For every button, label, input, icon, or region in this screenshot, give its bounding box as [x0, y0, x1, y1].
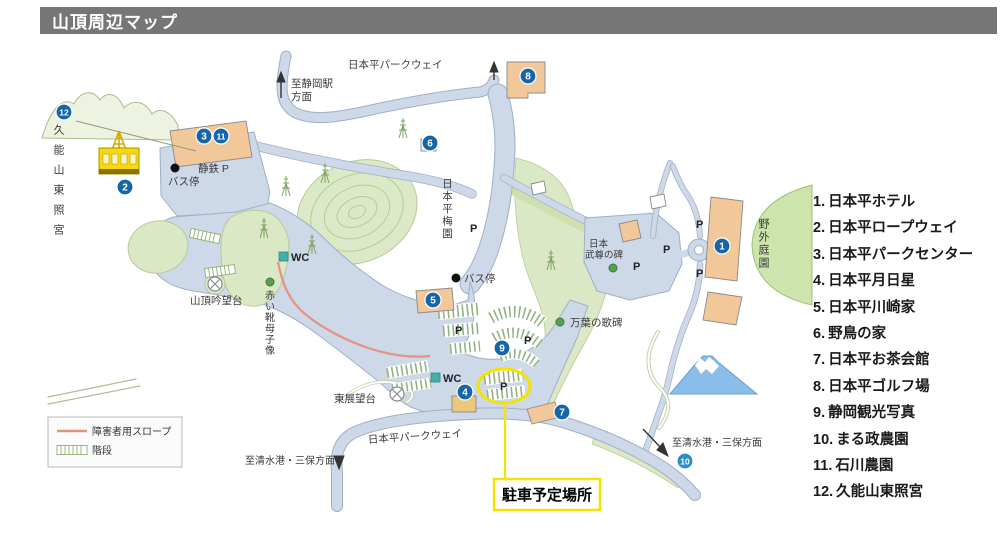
parking-plan-label: 駐車予定場所 — [502, 486, 592, 504]
marker-8: 8 — [520, 68, 536, 84]
svg-text:8: 8 — [525, 72, 531, 83]
label-to-shizuoka-2: 方面 — [291, 90, 312, 103]
marker-1: 1 — [714, 238, 730, 254]
bus-stop-dot-station — [171, 164, 180, 173]
svg-text:P: P — [696, 268, 703, 280]
legend-item-4: 4.日本平月日星 — [813, 273, 981, 290]
svg-text:9: 9 — [499, 344, 505, 355]
svg-text:10: 10 — [680, 457, 690, 467]
marker-9: 9 — [494, 340, 510, 356]
svg-text:12: 12 — [59, 108, 69, 118]
label-to-shimizu-right: 至清水港・三保方面 — [672, 436, 762, 449]
label-takeru-2: 武尊の碑 — [585, 249, 624, 261]
legend-item-8: 8.日本平ゴルフ場 — [813, 379, 981, 396]
legend-item-6: 6.野鳥の家 — [813, 326, 981, 343]
southwest-trail-lines — [48, 379, 140, 404]
label-yagai-teien: 野外庭園 — [757, 218, 770, 270]
label-wc-2: WC — [443, 373, 461, 385]
label-wc-1: WC — [291, 252, 309, 264]
building-small-2 — [650, 194, 666, 209]
svg-text:P: P — [696, 219, 703, 231]
legend-item-2: 2.日本平ロープウェイ — [813, 220, 981, 237]
legend-item-9: 9.静岡観光写真 — [813, 405, 981, 422]
svg-text:P: P — [633, 261, 640, 273]
svg-text:P: P — [663, 244, 670, 256]
akaikutsu-statue-dot — [266, 278, 274, 286]
viewpoint-icon-gimbodai — [208, 277, 222, 291]
building-hotel-annex — [703, 292, 742, 325]
marker-6: 6 — [422, 135, 438, 151]
legend-stairs-icon — [57, 446, 87, 455]
svg-text:4: 4 — [462, 388, 468, 399]
label-shizutetsu-p: 静鉄 P — [198, 162, 229, 175]
bus-stop-dot-center — [452, 274, 461, 283]
mount-fuji-icon — [670, 356, 757, 394]
marker-12: 12 — [56, 104, 72, 120]
legend-item-11: 11.石川農園 — [813, 458, 981, 475]
legend-item-1: 1.日本平ホテル — [813, 194, 981, 211]
label-takeru-1: 日本 — [589, 238, 609, 250]
marker-3: 3 — [196, 128, 212, 144]
label-to-shizuoka-1: 至静岡駅 — [291, 77, 333, 90]
label-to-shimizu-left: 至清水港・三保方面 — [245, 454, 335, 467]
building-small-1 — [531, 181, 546, 195]
legend-item-5: 5.日本平川崎家 — [813, 300, 981, 317]
roundabout-island — [695, 246, 704, 255]
svg-text:11: 11 — [217, 132, 226, 142]
svg-text:5: 5 — [430, 296, 436, 307]
svg-text:P: P — [500, 381, 507, 393]
label-baien: 日本平梅園 — [441, 178, 453, 241]
marker-11: 11 — [213, 128, 229, 144]
svg-text:6: 6 — [427, 139, 433, 150]
wc-icon-2 — [431, 373, 440, 382]
legend-stairs-label: 階段 — [92, 444, 112, 457]
label-akaikutsu: 赤い靴母子像 — [263, 290, 275, 356]
svg-text:P: P — [470, 223, 477, 235]
svg-text:7: 7 — [559, 408, 565, 419]
map-legend-box: 障害者用スロープ 階段 — [48, 417, 182, 467]
svg-text:P: P — [524, 335, 531, 347]
marker-7: 7 — [554, 404, 570, 420]
marker-5: 5 — [425, 292, 441, 308]
legend-panel: 1.日本平ホテル 2.日本平ロープウェイ 3.日本平パークセンター 4.日本平月… — [813, 194, 981, 511]
label-manyo: 万葉の歌碑 — [570, 316, 623, 329]
svg-text:1: 1 — [719, 242, 725, 253]
marker-4: 4 — [457, 384, 473, 400]
svg-text:2: 2 — [122, 183, 128, 194]
marker-2: 2 — [117, 179, 133, 195]
legend-item-12: 12.久能山東照宮 — [813, 484, 981, 501]
legend-item-7: 7.日本平お茶会館 — [813, 352, 981, 369]
marker-10: 10 — [677, 453, 693, 469]
viewpoint-icon-east — [390, 387, 404, 401]
label-gimbodai: 山頂吟望台 — [190, 294, 243, 307]
legend-item-10: 10.まる政農園 — [813, 432, 981, 449]
wc-icon-1 — [279, 252, 288, 261]
label-kunozan: 久能山東照宮 — [52, 124, 65, 244]
building-takeru-monument — [619, 220, 641, 242]
label-bus-stop-center: バス停 — [464, 272, 496, 285]
legend-item-3: 3.日本平パークセンター — [813, 247, 981, 264]
label-parkway-top: 日本平パークウェイ — [348, 58, 443, 71]
manyo-monument-dot — [556, 318, 564, 326]
takeru-monument-dot — [609, 264, 617, 272]
label-higashi-tembodai: 東展望台 — [334, 392, 376, 405]
svg-text:3: 3 — [201, 132, 207, 143]
svg-text:P: P — [455, 325, 462, 337]
label-bus-stop-top: バス停 — [168, 175, 200, 188]
legend-slope-label: 障害者用スロープ — [92, 425, 171, 438]
